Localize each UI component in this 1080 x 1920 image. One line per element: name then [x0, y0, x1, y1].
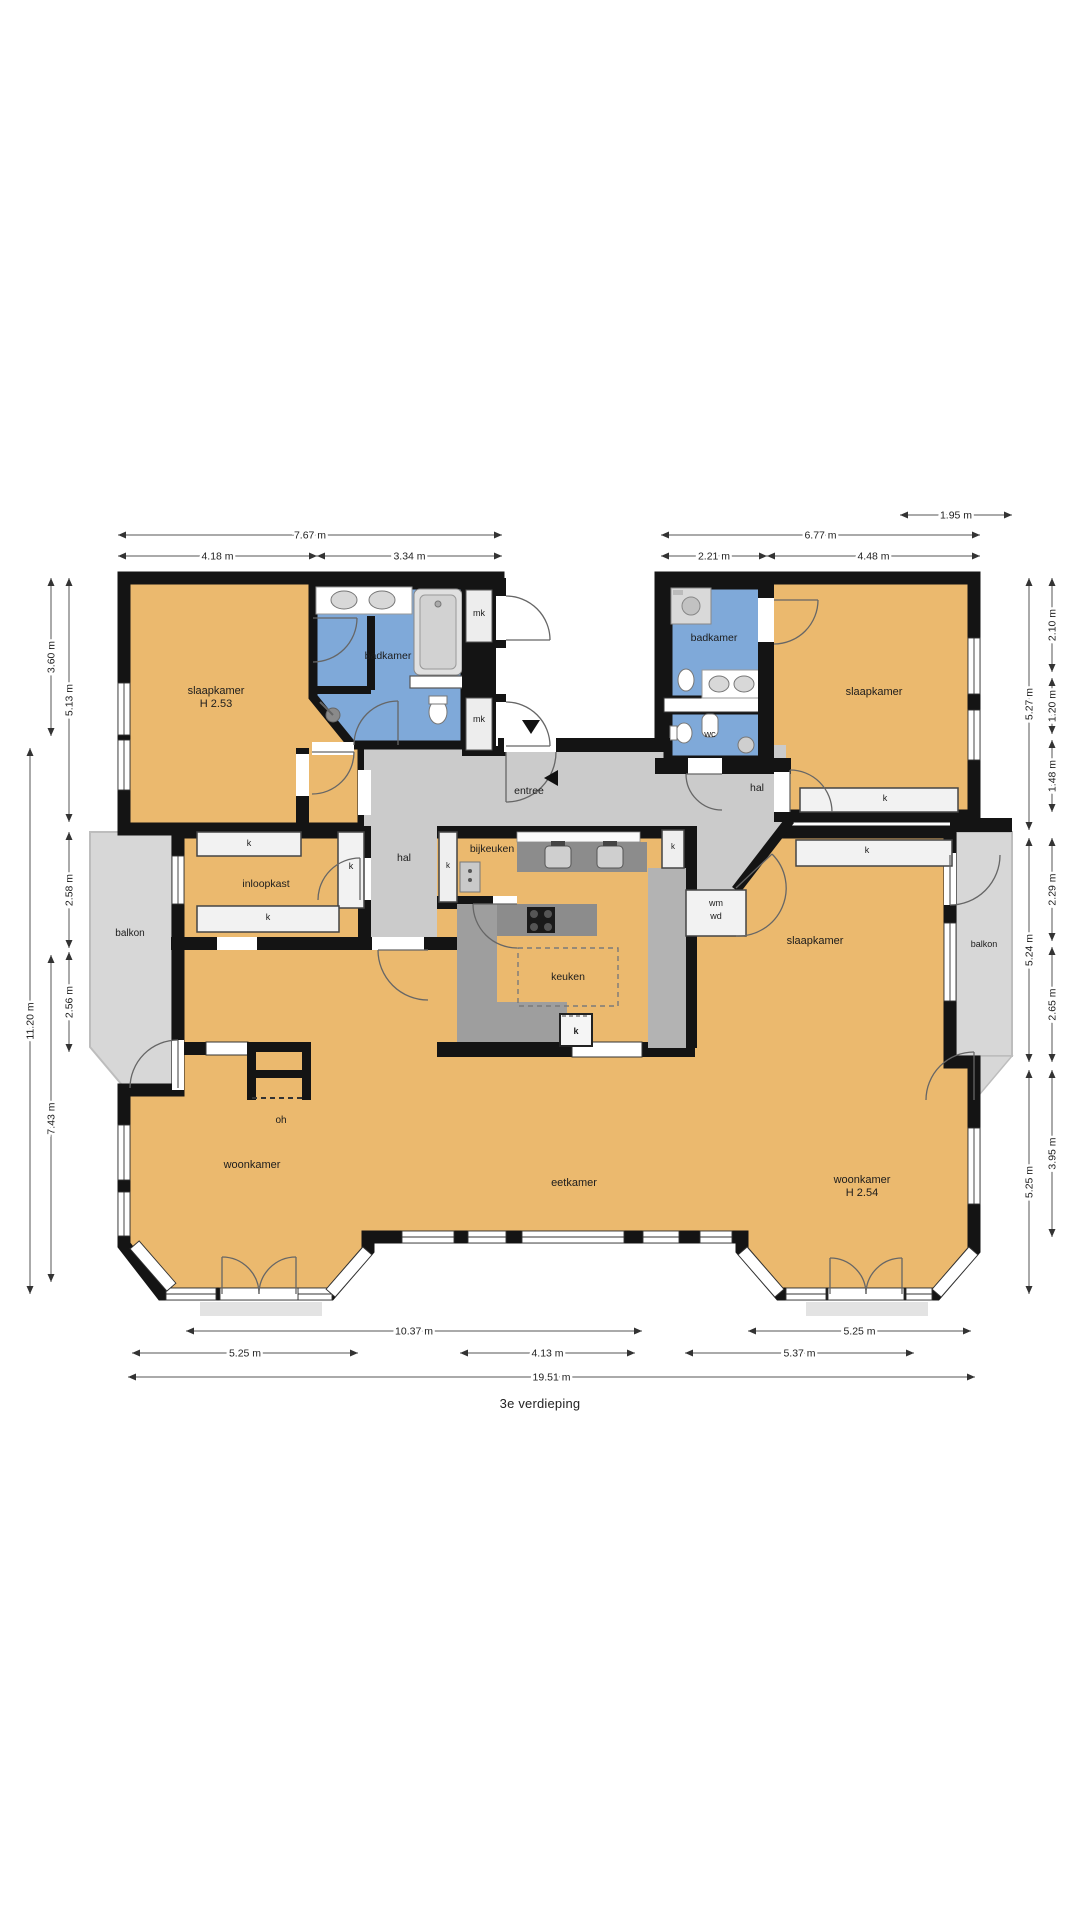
entrance-door-gap	[504, 738, 556, 752]
dimension-label: 5.24 m	[1024, 934, 1036, 966]
kitchen-sink	[597, 846, 623, 868]
room-label-slaapkamer-mid: slaapkamer	[787, 935, 844, 947]
dimension-label: 1.48 m	[1047, 760, 1059, 792]
dimension-label: 5.25 m	[229, 1348, 261, 1360]
dimension-label: 3.60 m	[46, 641, 58, 673]
floor-caption: 3e verdieping	[0, 1396, 1080, 1411]
dimension-label: 3.95 m	[1047, 1137, 1059, 1169]
window-gap	[496, 648, 506, 694]
dimension-label: 2.58 m	[64, 874, 76, 906]
door-gap	[758, 598, 774, 642]
dimension-label: 2.29 m	[1047, 873, 1059, 905]
dimension-label: 5.27 m	[1024, 688, 1036, 720]
dimension-label: 4.18 m	[201, 551, 233, 563]
shelf-divider	[664, 698, 762, 712]
dimension-label: 7.67 m	[294, 530, 326, 542]
room-label-kast-inloop-bottom: k	[266, 912, 271, 922]
floorplan-drawing: slaapkamerH 2.53badkamermkmkentreebadkam…	[0, 0, 1080, 1920]
room-label-bijkeuken: bijkeuken	[470, 843, 515, 855]
room-label-slaapkamer-topright: slaapkamer	[846, 686, 903, 698]
sink-counter	[316, 587, 412, 614]
balcony-left	[90, 832, 172, 1085]
appliance	[460, 862, 480, 892]
door-gap	[296, 754, 309, 796]
wc-toilet	[676, 723, 692, 743]
bay-shadow-right	[806, 1302, 928, 1316]
room-label-badkamer-right: badkamer	[691, 632, 738, 644]
room-label-kast-inloop-top: k	[247, 838, 252, 848]
dimension-label: 2.56 m	[64, 986, 76, 1018]
room-label-balkon-left: balkon	[115, 928, 144, 939]
room-label-mk-top: mk	[473, 608, 485, 618]
sink-basin	[369, 591, 395, 609]
closet-band-midright	[796, 840, 952, 866]
dimension-label: 4.48 m	[857, 551, 889, 563]
window-stub	[206, 1042, 248, 1055]
round-basin	[738, 737, 754, 753]
dimension-label: 5.37 m	[783, 1348, 815, 1360]
counter-sinks	[517, 842, 647, 872]
closet-band-topright	[800, 788, 958, 812]
room-label-hal-right: hal	[750, 782, 764, 794]
entrance-arrow-down-icon	[522, 720, 540, 734]
dimension-label: 4.13 m	[531, 1348, 563, 1360]
dimension-label: 2.65 m	[1047, 988, 1059, 1020]
door-gap	[688, 758, 722, 774]
room-label-open-haard: oh	[275, 1115, 286, 1126]
toilet	[678, 669, 694, 691]
dimension-label: 10.37 m	[395, 1326, 433, 1338]
bathtub-drain	[435, 601, 441, 607]
dimension-label: 5.25 m	[843, 1326, 875, 1338]
room-label-balkon-right: balkon	[971, 939, 998, 949]
sink-basin	[331, 591, 357, 609]
dimension-label: 19.51 m	[533, 1372, 571, 1384]
dimension-label: 1.20 m	[1047, 690, 1059, 722]
room-label-entree: entree	[514, 785, 544, 797]
room-label-hal-left: hal	[397, 852, 411, 864]
mk-closet-bottom	[466, 698, 492, 750]
kitchen-sink	[545, 846, 571, 868]
dimension-label: 2.10 m	[1047, 609, 1059, 641]
door-gap	[372, 937, 424, 950]
balcony-corner-wedge	[980, 1056, 1012, 1094]
balcony-right	[956, 832, 1012, 1094]
room-label-mk-bottom: mk	[473, 714, 485, 724]
wc-bottom-wall	[655, 758, 791, 774]
room-label-keuken: keuken	[551, 971, 585, 983]
room-label-kast-inloop-right: k	[349, 861, 354, 871]
counter-back	[517, 832, 640, 842]
room-label-kast-topright: k	[883, 793, 888, 803]
dimension-label: 5.13 m	[64, 684, 76, 716]
room-label-woonkamer-left: woonkamer	[223, 1159, 281, 1171]
floorplan-page: slaapkamerH 2.53badkamermkmkentreebadkam…	[0, 0, 1080, 1920]
kitchen-strip	[648, 868, 686, 1048]
passage-gap	[358, 770, 371, 815]
door-gap	[312, 742, 354, 755]
door-gap	[774, 772, 790, 812]
dimension-label: 11.20 m	[25, 1002, 37, 1039]
balcony-right-top-wall	[950, 818, 1012, 832]
room-label-wc: wc	[703, 729, 716, 740]
hal-left-area	[364, 820, 437, 944]
bay-shadow-left	[200, 1302, 322, 1316]
room-label-inloopkast: inloopkast	[242, 878, 289, 890]
dimension-label: 7.43 m	[46, 1102, 58, 1134]
sink-basin	[734, 676, 754, 692]
room-label-eetkamer: eetkamer	[551, 1177, 597, 1189]
sink-basin	[709, 676, 729, 692]
dimension-label: 1.95 m	[940, 510, 972, 522]
dimension-label: 6.77 m	[804, 530, 836, 542]
room-label-badkamer-left: badkamer	[365, 650, 412, 662]
dimension-label: 2.21 m	[698, 551, 730, 563]
room-label-kast-midright: k	[865, 845, 870, 855]
door-gap	[496, 596, 506, 640]
door-gap	[217, 937, 257, 950]
dimension-label: 5.25 m	[1024, 1166, 1036, 1198]
dimension-label: 3.34 m	[393, 551, 425, 563]
